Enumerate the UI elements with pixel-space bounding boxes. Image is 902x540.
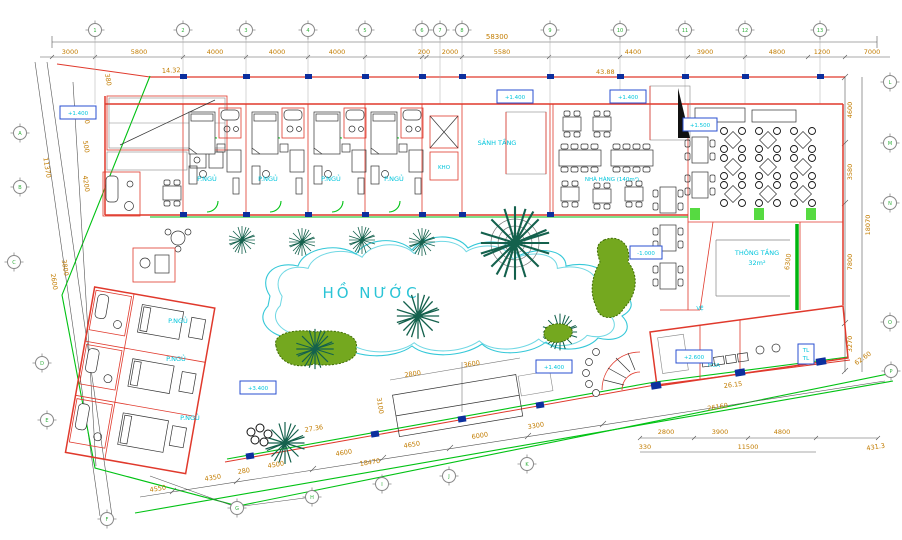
hotel-room bbox=[371, 108, 423, 212]
corridor-table bbox=[653, 187, 683, 213]
dim-label: 4000 bbox=[329, 48, 346, 56]
dim-label: 4350 bbox=[204, 472, 222, 482]
grid-bubble-label: B bbox=[18, 185, 22, 191]
cafe-table bbox=[685, 137, 715, 163]
dim-label: 500 bbox=[81, 140, 91, 154]
lobby: SẢNH TẦNG bbox=[478, 112, 546, 174]
elevation-marker: +1.400 bbox=[60, 106, 96, 119]
dim-label: 26.15 bbox=[723, 380, 742, 390]
dim-label: 3800 bbox=[60, 259, 70, 277]
room-label: VỆ bbox=[696, 304, 704, 312]
dim-label: 3000 bbox=[62, 48, 79, 56]
grid-bubble-label: 4 bbox=[306, 28, 309, 34]
dim-label: 18070 bbox=[864, 215, 872, 236]
right-dimension-chain: 4600 3580 7800 3270 18070 62.60 431.3 bbox=[842, 74, 886, 452]
dim-label: 3580 bbox=[846, 164, 854, 181]
cabinet-label: TL bbox=[802, 348, 810, 354]
room-label: NHÀ HÀNG (140m²) bbox=[585, 176, 639, 183]
elevation-marker: +3.400 bbox=[240, 381, 276, 394]
cafe-table bbox=[721, 128, 746, 153]
room-label: P.NGỦ bbox=[197, 173, 217, 183]
grid-bubble-label: I bbox=[381, 482, 382, 488]
dim-label: 5800 bbox=[131, 48, 148, 56]
cafe-table bbox=[791, 155, 816, 180]
bottom-dimension-chain: 4550 4350 280 4500 4600 4650 6000 3300 1… bbox=[140, 253, 885, 507]
dim-label: 3900 bbox=[712, 428, 729, 436]
hotel-room bbox=[189, 108, 241, 212]
cafe-table bbox=[756, 182, 781, 207]
hotel-room bbox=[252, 108, 304, 212]
pond-label: HỒ NƯỚC bbox=[322, 281, 419, 302]
grid-bubble-label: J bbox=[447, 474, 449, 480]
dim-label: 58300 bbox=[486, 33, 508, 41]
dim-label: 2800 bbox=[404, 369, 422, 379]
bedroom-wing bbox=[65, 287, 214, 474]
dim-label: 4800 bbox=[769, 48, 786, 56]
dim-label: 18470 bbox=[359, 457, 381, 468]
grid-bubble-label: N bbox=[888, 201, 892, 207]
dim-label: 4800 bbox=[774, 428, 791, 436]
dim-label: 4650 bbox=[403, 439, 421, 449]
dim-label: 43.88 bbox=[596, 68, 615, 76]
dim-label: 4600 bbox=[335, 447, 353, 457]
room-label: P.NGỦ bbox=[180, 412, 200, 422]
dim-label: 6000 bbox=[471, 430, 489, 440]
storage-room: KHO bbox=[430, 152, 458, 180]
grid-bubble-label: A bbox=[18, 131, 22, 137]
grid-bubble-label: D bbox=[40, 361, 44, 367]
dim-label: 431.3 bbox=[866, 442, 886, 453]
svg-text:+2.600: +2.600 bbox=[684, 355, 705, 361]
dim-label: 4000 bbox=[207, 48, 224, 56]
grid-bubble-label: 11 bbox=[682, 28, 688, 34]
terrace-pod bbox=[133, 248, 175, 282]
elevator bbox=[430, 116, 458, 148]
dim-label: 4550 bbox=[149, 483, 167, 493]
restaurant-table bbox=[563, 111, 581, 137]
dim-label: 5580 bbox=[494, 48, 511, 56]
room-label: 32m² bbox=[748, 259, 766, 267]
room-label: SẢNH TẦNG bbox=[478, 137, 517, 147]
dim-label: 62.60 bbox=[853, 350, 873, 367]
room-label: KHO bbox=[438, 165, 451, 171]
shrub-icon bbox=[289, 228, 315, 256]
hotel-room bbox=[314, 108, 366, 212]
room-label: P.NGỦ bbox=[168, 315, 188, 325]
round-table bbox=[165, 229, 191, 252]
top-dimension-chain: 58300 3000 5800 4000 4000 4000 200 2000 … bbox=[40, 33, 890, 104]
dim-label: 4200 bbox=[81, 175, 91, 193]
restaurant-table bbox=[625, 181, 643, 207]
grid-bubble-label: E bbox=[45, 418, 48, 424]
grid-bubble-label: O bbox=[888, 320, 892, 326]
dim-label: 27.36 bbox=[304, 423, 324, 434]
dim-label: 11500 bbox=[738, 443, 759, 451]
dim-label: 2600 bbox=[49, 273, 59, 291]
grid-bubble-label: 8 bbox=[460, 28, 463, 34]
svg-text:+1.400: +1.400 bbox=[505, 95, 526, 101]
grid-bubble-label: P bbox=[889, 369, 892, 375]
canopy bbox=[592, 238, 635, 317]
dim-label: 7000 bbox=[864, 48, 881, 56]
dim-label: 7800 bbox=[846, 254, 854, 271]
elevation-marker: +2.600 bbox=[676, 350, 712, 363]
dim-label: 2800 bbox=[658, 428, 675, 436]
dim-label: 14.32 bbox=[162, 66, 181, 75]
cafe-table bbox=[685, 172, 715, 198]
grid-bubble-label: 6 bbox=[420, 28, 423, 34]
svg-text:+1.400: +1.400 bbox=[544, 365, 565, 371]
restaurant: NHÀ HÀNG (140m²) bbox=[553, 104, 653, 215]
cafe-table bbox=[756, 155, 781, 180]
restaurant-table bbox=[593, 111, 611, 137]
elevation-marker: +1.500 bbox=[683, 118, 717, 131]
floor-plan-drawing: 58300 3000 5800 4000 4000 4000 200 2000 … bbox=[0, 0, 902, 540]
cafe-table bbox=[721, 182, 746, 207]
svg-text:-1.000: -1.000 bbox=[637, 251, 655, 257]
restaurant-table bbox=[559, 144, 601, 172]
secondary-staircase bbox=[650, 86, 690, 140]
room-label: P.NGỦ bbox=[166, 353, 186, 363]
dim-label: 4600 bbox=[846, 102, 854, 119]
corridor-table bbox=[653, 263, 683, 289]
restaurant-table bbox=[611, 144, 653, 172]
dining-table bbox=[163, 180, 181, 206]
grid-bubble-label: 3 bbox=[244, 28, 247, 34]
svg-text:+3.400: +3.400 bbox=[248, 386, 269, 392]
tree-icon bbox=[266, 422, 305, 464]
grid-bubble-label: M bbox=[888, 141, 892, 147]
cabinet-label: TL bbox=[802, 356, 810, 362]
grid-bubble-label: 12 bbox=[742, 28, 748, 34]
grid-bubble-label: F bbox=[106, 517, 109, 523]
cafe-table bbox=[756, 128, 781, 153]
room-label: P.NGỦ bbox=[321, 173, 341, 183]
dim-label: 11370 bbox=[41, 157, 52, 179]
dim-label: 380 bbox=[103, 73, 113, 87]
grid-bubble-label: 10 bbox=[617, 28, 623, 34]
grid-bubble-label: 13 bbox=[817, 28, 823, 34]
dim-label: 3100 bbox=[375, 397, 385, 415]
dim-label: 4500 bbox=[267, 459, 285, 469]
dim-label: 3300 bbox=[527, 420, 545, 430]
grid-bubble-label: G bbox=[235, 506, 239, 512]
dim-label: 4400 bbox=[625, 48, 642, 56]
dim-label: 2000 bbox=[442, 48, 459, 56]
service-rooms: TL TL VỆ HOA bbox=[658, 304, 814, 380]
left-dimension-chain: 11370 380 4000 500 4200 3800 2600 bbox=[41, 73, 112, 466]
dim-label: 200 bbox=[418, 48, 430, 56]
elevation-marker: +1.400 bbox=[610, 90, 646, 103]
kitchen bbox=[107, 152, 223, 170]
grid-bubble-label: 5 bbox=[363, 28, 366, 34]
grid-bubble-label: 7 bbox=[438, 28, 441, 34]
cafe-table bbox=[791, 182, 816, 207]
hotel-rooms: P.NGỦ P.NGỦ P.NGỦ P.NGỦ bbox=[189, 108, 423, 212]
cafe-table bbox=[791, 128, 816, 153]
grid-bubble-label: H bbox=[310, 495, 314, 501]
dim-label: 330 bbox=[639, 443, 651, 451]
room-label: P.NGỦ bbox=[258, 173, 278, 183]
dim-label: 4000 bbox=[269, 48, 286, 56]
dim-label: 3900 bbox=[697, 48, 714, 56]
svg-text:+1.400: +1.400 bbox=[68, 111, 89, 117]
grid-bubble-label: 1 bbox=[93, 28, 96, 34]
grid-bubble-label: 2 bbox=[181, 28, 184, 34]
restaurant-table bbox=[561, 181, 579, 207]
grid-bubble-label: L bbox=[889, 80, 892, 86]
shrub-icon bbox=[349, 226, 375, 254]
room-label: THÔNG TẦNG bbox=[734, 247, 779, 257]
dim-label: 26160 bbox=[707, 401, 729, 412]
room-label: P.NGỦ bbox=[384, 173, 404, 183]
svg-text:+1.500: +1.500 bbox=[690, 123, 711, 129]
corridor-tables bbox=[653, 187, 683, 289]
svg-text:+1.400: +1.400 bbox=[618, 95, 639, 101]
elevation-marker: +1.400 bbox=[497, 90, 533, 103]
dim-label: 6300 bbox=[783, 253, 793, 270]
left-bathroom bbox=[103, 172, 140, 216]
dim-label: 3600 bbox=[463, 359, 481, 369]
dim-label: 280 bbox=[237, 466, 251, 476]
dim-label: 1200 bbox=[814, 48, 831, 56]
grid-bubble-label: C bbox=[12, 260, 16, 266]
elevation-marker: +1.400 bbox=[536, 360, 572, 373]
cafe-table bbox=[721, 155, 746, 180]
restaurant-table bbox=[593, 183, 611, 209]
shrub-icon bbox=[229, 226, 255, 254]
elevation-marker: -1.000 bbox=[630, 246, 662, 259]
flower-cluster bbox=[247, 424, 272, 446]
grid-bubble-label: 9 bbox=[548, 28, 551, 34]
